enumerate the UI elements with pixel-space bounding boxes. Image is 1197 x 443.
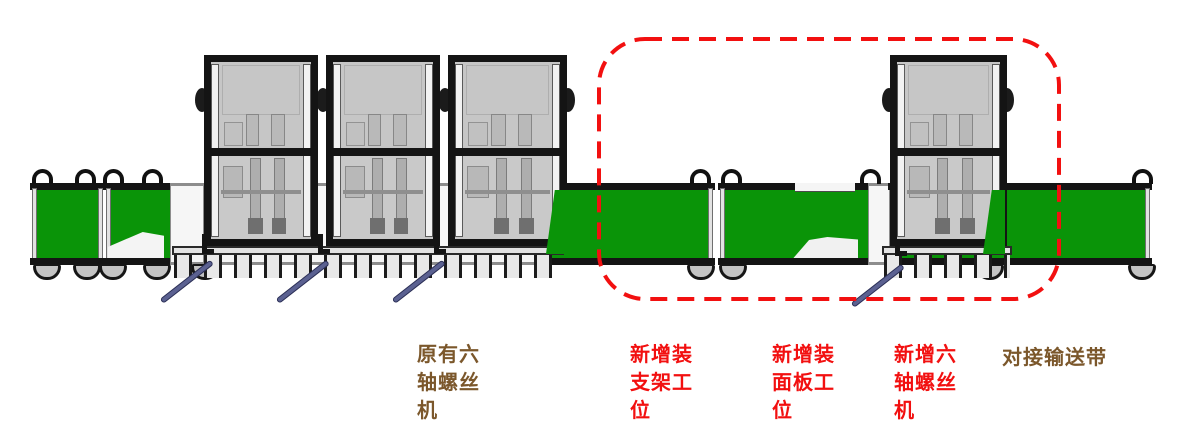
machinery-detail [271,114,284,146]
label-line: 轴螺丝 [417,369,480,397]
caster-wheel-icon [73,264,101,280]
label-new-panel-station: 新增装 面板工 位 [772,341,835,425]
machine-lower-panel [341,156,425,239]
label-line: 轴螺丝 [894,369,957,397]
machine-cabinet-1 [204,55,318,246]
machinery-detail [494,218,509,234]
label-line: 面板工 [772,369,835,397]
conveyor-ramp-notch [108,232,164,259]
conveyor-segment-left-1 [32,183,103,265]
machinery-detail [468,122,488,146]
machinery-detail [248,218,262,234]
machinery-detail [370,218,384,234]
machine-upper-panel [219,62,303,148]
label-line: 支架工 [630,369,693,397]
label-line: 新增六 [894,341,957,369]
machine-base-row [172,246,564,282]
machine-upper-panel [341,62,425,148]
conveyor-end-post [98,188,103,260]
machine-divider [204,148,318,156]
conveyor-end-post [1145,188,1150,260]
caster-wheel-icon [33,264,61,280]
lifting-ring-icon [103,169,124,184]
machinery-detail [224,122,242,146]
label-line: 位 [630,397,693,425]
lifting-ring-icon [142,169,163,184]
lifting-ring-icon [1132,169,1153,184]
machine-divider [326,148,440,156]
label-existing-six-axis-screw-machine: 原有六 轴螺丝 机 [417,341,480,425]
label-new-bracket-station: 新增装 支架工 位 [630,341,693,425]
machine-cabinet-3 [448,55,567,246]
machinery-detail [346,122,364,146]
machine-lower-panel [219,156,303,239]
machinery-detail [519,218,534,234]
machinery-detail [246,114,259,146]
conveyor-end-post [32,188,37,260]
machinery-detail [393,114,406,146]
label-line: 新增装 [630,341,693,369]
caster-wheel-icon [143,264,171,280]
machinery-detail [518,114,532,146]
label-line: 位 [772,397,835,425]
label-line: 新增装 [772,341,835,369]
highlight-region-box [597,37,1061,301]
machine-upper-panel [463,62,552,148]
label-new-six-axis-screw-machine: 新增六 轴螺丝 机 [894,341,957,425]
machinery-detail [343,190,424,194]
conveyor-segment-left-2 [106,183,170,265]
machinery-detail [465,190,550,194]
machinery-detail [368,114,381,146]
base-bar [172,246,564,255]
equipment-layout-diagram: 原有六 轴螺丝 机 新增装 支架工 位 新增装 面板工 位 新增六 轴螺丝 机 … [0,0,1197,443]
machinery-detail [344,65,422,115]
machinery-detail [222,65,300,115]
machine-cabinet-2 [326,55,440,246]
label-line: 机 [894,397,957,425]
machinery-detail [272,218,286,234]
lifting-ring-icon [32,169,53,184]
machinery-detail [221,190,302,194]
label-line: 机 [417,397,480,425]
machine-divider [448,148,567,156]
label-line: 原有六 [417,341,480,369]
base-feet [174,255,562,278]
machinery-detail [394,218,408,234]
label-docking-conveyor: 对接输送带 [1002,344,1107,372]
machinery-detail [491,114,505,146]
caster-wheel-icon [99,264,127,280]
machine-lower-panel [463,156,552,239]
caster-wheel-icon [1128,264,1156,280]
label-line: 对接输送带 [1002,344,1107,372]
lifting-ring-icon [75,169,96,184]
machinery-detail [466,65,549,115]
